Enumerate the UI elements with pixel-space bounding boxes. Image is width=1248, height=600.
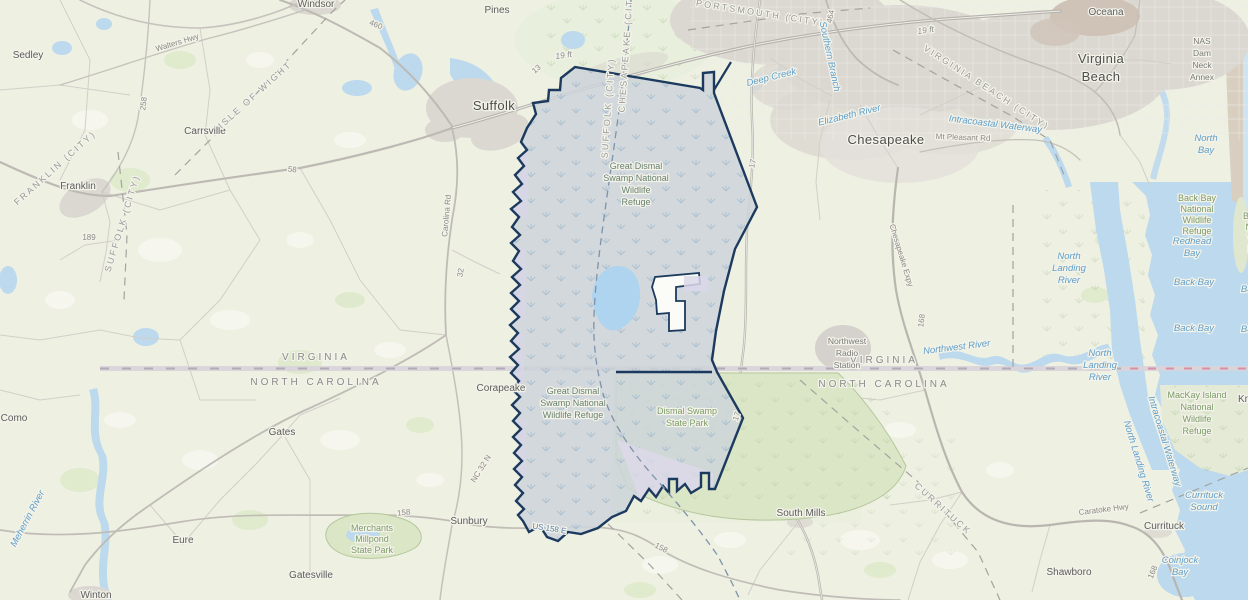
label-58: 58 bbox=[287, 165, 297, 175]
label-virginia-beach-2: Beach bbox=[1082, 69, 1121, 84]
label-nw-radio-1: Northwest bbox=[828, 336, 867, 346]
label-redhead-1: Redhead bbox=[1173, 236, 1212, 247]
label-knotts-island: Knotts Island bbox=[1238, 394, 1248, 405]
label-nas-1: NAS bbox=[1193, 36, 1211, 46]
label-back-bay-b2: Back Bay bbox=[1241, 324, 1248, 335]
label-merchants-1: Merchants bbox=[351, 523, 394, 533]
label-168-n: 168 bbox=[916, 313, 927, 328]
label-dismal-sp-1: Dismal Swamp bbox=[657, 406, 717, 416]
label-corapeake: Corapeake bbox=[477, 383, 526, 394]
label-backbay-nwr2-1: Back Bay bbox=[1243, 211, 1248, 221]
label-north-landing1-2: Landing bbox=[1052, 263, 1087, 274]
label-north-landing1-3: River bbox=[1058, 275, 1081, 286]
label-158-w: 158 bbox=[397, 507, 412, 517]
label-mackay-3: Wildlife bbox=[1182, 414, 1211, 424]
label-pines: Pines bbox=[484, 5, 509, 16]
map-canvas[interactable]: Sedley Pines Windsor Carrsville Franklin… bbox=[0, 0, 1248, 600]
label-north-landing2-3: River bbox=[1089, 372, 1112, 383]
label-windsor: Windsor bbox=[298, 0, 335, 10]
label-como: Como bbox=[1, 413, 28, 424]
label-mt-pleasant: Mt Pleasant Rd bbox=[936, 132, 991, 143]
label-gdsnwr-n-1: Great Dismal bbox=[610, 161, 663, 171]
label-north-bay-1: North bbox=[1194, 133, 1217, 144]
label-dismal-sp-2: State Park bbox=[666, 418, 709, 428]
label-currituck: Currituck bbox=[1144, 521, 1185, 532]
label-chesapeake: Chesapeake bbox=[848, 132, 925, 147]
label-backbay-nwr-1: Back Bay bbox=[1178, 193, 1217, 203]
label-backbay-nwr-4: Refuge bbox=[1182, 226, 1211, 236]
label-nw-radio-2: Radio bbox=[836, 348, 858, 358]
label-sedley: Sedley bbox=[13, 50, 44, 61]
label-north-carolina-east: NORTH CAROLINA bbox=[818, 379, 949, 390]
label-shawboro: Shawboro bbox=[1046, 567, 1091, 578]
label-nas-2: Dam bbox=[1193, 48, 1211, 58]
label-backbay-nwr-2: National bbox=[1180, 204, 1213, 214]
label-coinjock-1: Coinjock bbox=[1162, 555, 1200, 566]
label-north-landing1-1: North bbox=[1057, 251, 1080, 262]
label-north-bay-2: Bay bbox=[1198, 145, 1216, 156]
label-north-landing2-2: Landing bbox=[1083, 360, 1118, 371]
label-back-bay-a: Back Bay bbox=[1174, 277, 1215, 288]
label-gates: Gates bbox=[269, 427, 296, 438]
label-winton: Winton bbox=[80, 590, 111, 600]
label-merchants-3: State Park bbox=[351, 545, 394, 555]
label-oceana: Oceana bbox=[1088, 7, 1123, 18]
label-suffolk: Suffolk bbox=[473, 98, 515, 113]
label-gdsnwr-s-2: Swamp National bbox=[540, 398, 606, 408]
label-redhead-2: Bay bbox=[1184, 248, 1202, 259]
label-nw-radio-3: Station bbox=[834, 360, 861, 370]
label-back-bay-a2: Back Bay bbox=[1241, 284, 1248, 295]
label-gdsnwr-n-3: Wildlife bbox=[621, 185, 650, 195]
label-franklin: Franklin bbox=[60, 181, 96, 192]
label-gdsnwr-n-4: Refuge bbox=[621, 197, 650, 207]
label-coinjock-2: Bay bbox=[1172, 567, 1190, 578]
label-mackay-2: National bbox=[1180, 402, 1213, 412]
label-189: 189 bbox=[82, 233, 96, 242]
topo-map[interactable]: Sedley Pines Windsor Carrsville Franklin… bbox=[0, 0, 1248, 600]
label-currituck-sound-1: Currituck bbox=[1185, 490, 1224, 501]
label-back-bay-b: Back Bay bbox=[1174, 323, 1215, 334]
label-258: 258 bbox=[138, 96, 149, 111]
label-mackay-1: MacKay Island bbox=[1167, 390, 1226, 400]
label-mackay-4: Refuge bbox=[1182, 426, 1211, 436]
label-eure: Eure bbox=[172, 535, 194, 546]
label-gdsnwr-s-1: Great Dismal bbox=[547, 386, 600, 396]
label-gdsnwr-s-3: Wildlife Refuge bbox=[543, 410, 604, 420]
label-north-landing2-1: North bbox=[1088, 348, 1111, 359]
label-gdsnwr-n-2: Swamp National bbox=[603, 173, 669, 183]
label-nas-4: Annex bbox=[1190, 72, 1215, 82]
label-backbay-nwr-3: Wildlife bbox=[1182, 215, 1211, 225]
label-merchants-2: Millpond bbox=[355, 534, 389, 544]
label-sunbury: Sunbury bbox=[450, 516, 487, 527]
label-virginia-beach-1: Virginia bbox=[1078, 51, 1125, 66]
label-currituck-sound-2: Sound bbox=[1190, 502, 1218, 513]
label-nas-3: Neck bbox=[1192, 60, 1212, 70]
label-virginia-west: VIRGINIA bbox=[282, 352, 350, 363]
label-gatesville: Gatesville bbox=[289, 570, 333, 581]
label-north-carolina-west: NORTH CAROLINA bbox=[250, 377, 381, 388]
label-south-mills: South Mills bbox=[777, 508, 826, 519]
